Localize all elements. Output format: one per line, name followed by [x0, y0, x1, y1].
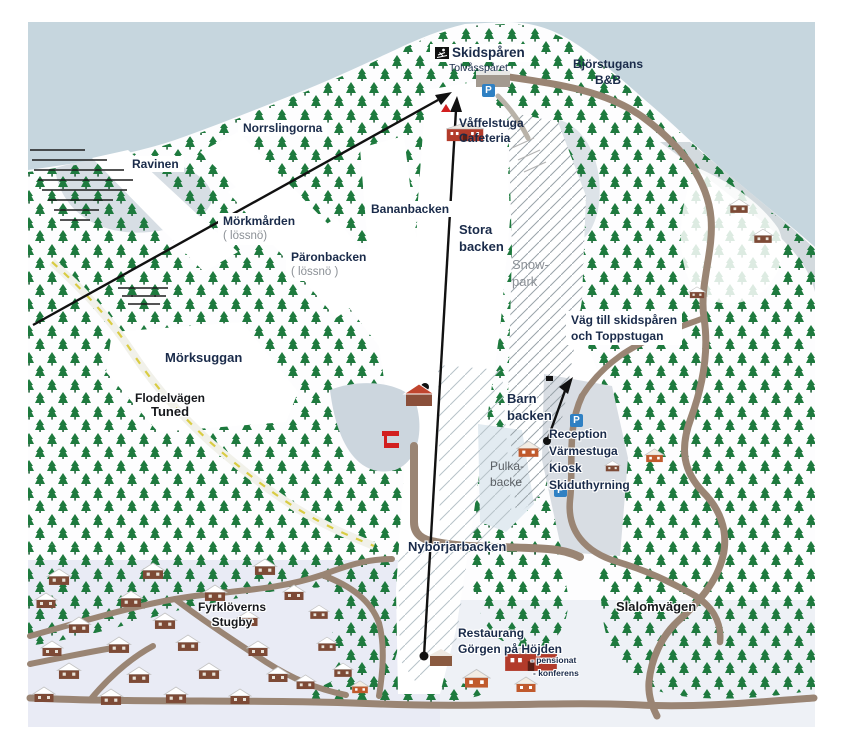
label-konferens: - konferens	[533, 668, 579, 678]
label-paronbacken: Päronbacken ( lössnö )	[286, 249, 371, 281]
label-vag-till-skidsparen: Väg till skidspåren och Toppstugan	[566, 311, 682, 345]
label-bananbacken: Bananbacken	[366, 201, 454, 217]
label-fyrkloverns-stugby: Fyrklöverns Stugby	[186, 600, 278, 630]
label-restaurang: Restaurang Görgen på Höjden	[458, 625, 562, 657]
label-slalomvagen: Slalomvägen	[616, 599, 696, 614]
parking-icon: P	[482, 84, 495, 97]
label-vaffelstuga: Våffelstuga Cafeteria	[459, 116, 524, 146]
skier-icon	[435, 47, 449, 59]
label-morksuggan: Mörksuggan	[160, 349, 247, 366]
skidsparen-text: Skidspåren	[452, 45, 525, 61]
ski-map-artwork	[0, 0, 841, 733]
label-barn-backen: Barn backen	[507, 390, 552, 424]
label-tolvasparet: Tolvåsspåret	[449, 62, 508, 74]
ski-map: Skidspåren Tolvåsspåret Björstugans B&B …	[0, 0, 841, 733]
label-ravinen: Ravinen	[127, 156, 184, 172]
label-reception: Reception Värmestuga Kiosk Skiduthyrning	[549, 426, 630, 494]
label-morkmarden: Mörkmården ( lössnö)	[218, 213, 300, 245]
label-pulka-backe: Pulka- backe	[490, 458, 524, 490]
label-pensionat: - pensionat	[531, 655, 576, 665]
label-snowpark: Snow- park	[512, 256, 549, 290]
label-norrslingorna: Norrslingorna	[238, 120, 327, 136]
label-skidsparen: Skidspåren	[430, 44, 530, 62]
label-nyborjarbacken: Nybörjarbacken	[408, 539, 506, 554]
label-flodelvagen: Flodelvägen Tuned	[126, 391, 214, 419]
label-bjorstugans: Björstugans B&B	[558, 56, 658, 88]
label-stora-backen: Stora backen	[459, 221, 504, 255]
